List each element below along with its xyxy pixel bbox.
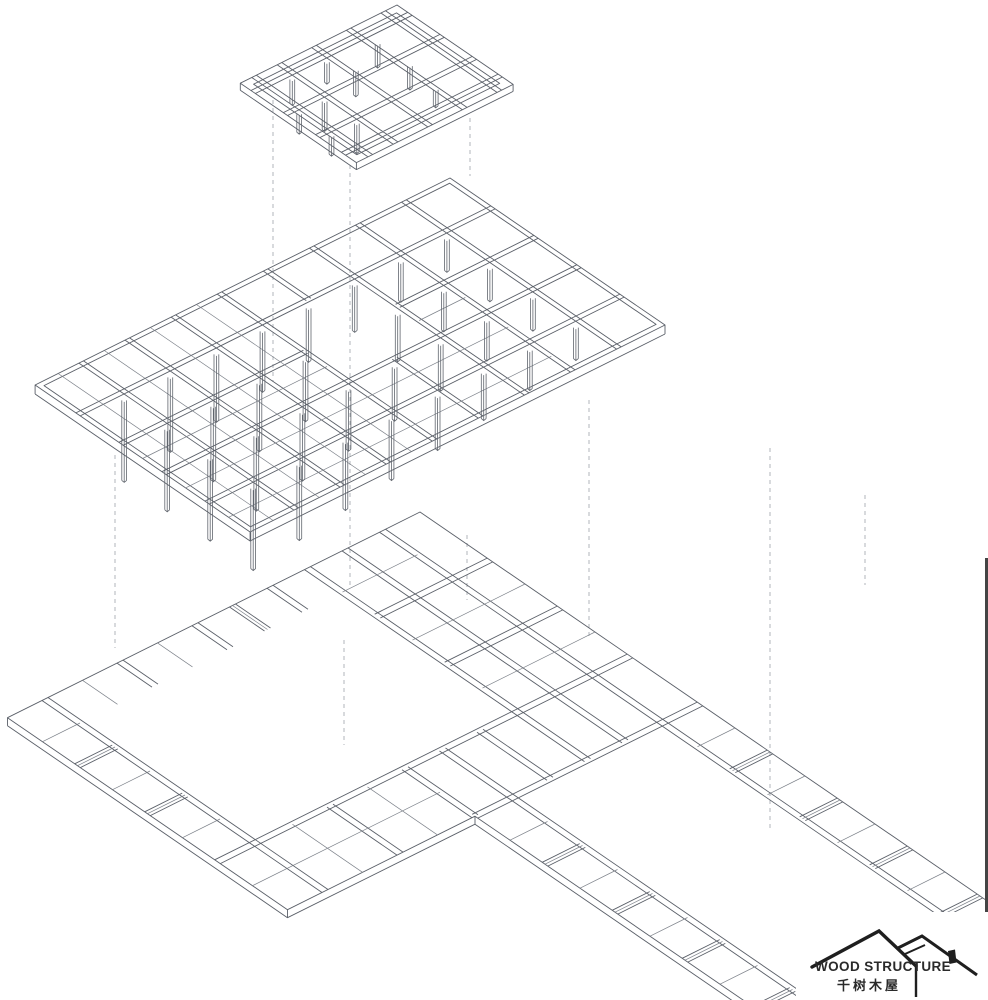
- logo-title: WOOD STRUCTURE: [815, 959, 951, 974]
- screenshot-root: WOOD STRUCTURE 千树木屋: [0, 0, 988, 1000]
- logo: WOOD STRUCTURE 千树木屋: [796, 912, 988, 1000]
- exploded-axonometric-diagram: WOOD STRUCTURE 千树木屋: [0, 0, 988, 1000]
- layer-roof-grid: [240, 5, 513, 170]
- floor-platform-ties: [58, 298, 551, 521]
- roof-grid-beams: [240, 5, 513, 170]
- structure-layers: [8, 5, 988, 1000]
- logo-subtitle: 千树木屋: [837, 978, 901, 993]
